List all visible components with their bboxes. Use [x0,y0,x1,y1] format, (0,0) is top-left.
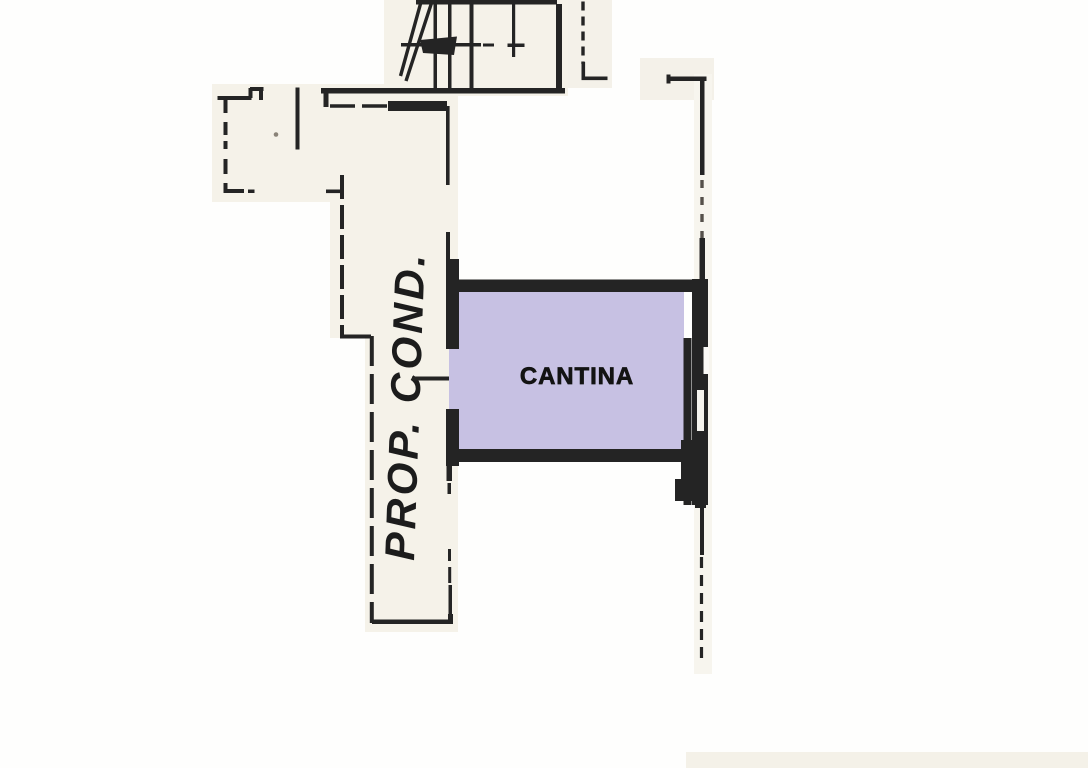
svg-text:CANTINA: CANTINA [520,363,634,390]
